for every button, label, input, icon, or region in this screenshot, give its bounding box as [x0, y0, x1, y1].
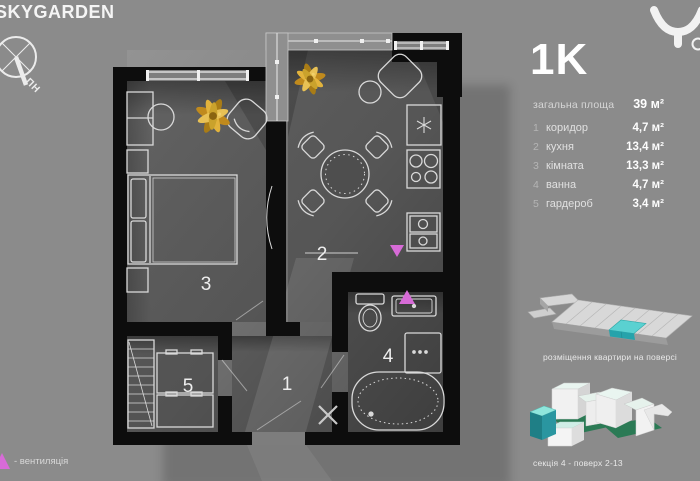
room-name: гардероб	[546, 198, 632, 210]
list-item: 5 гардероб 3,4 м²	[533, 198, 664, 210]
developer-logo-icon	[648, 4, 700, 56]
room-num: 4	[533, 179, 546, 191]
unit-type: 1K	[530, 38, 588, 82]
list-item: 4 ванна 4,7 м²	[533, 179, 664, 191]
room-name: кімната	[546, 160, 626, 172]
room-num: 1	[533, 122, 546, 134]
floor-location-diagram	[520, 272, 700, 354]
brand-logo: SKYGARDEN	[0, 2, 115, 23]
compass-icon: ПН	[0, 37, 42, 96]
vent-legend-label: - вентиляція	[14, 456, 68, 467]
list-item: 3 кімната 13,3 м²	[533, 160, 664, 172]
room-area: 4,7 м²	[632, 122, 664, 134]
dining-table	[321, 150, 369, 198]
total-area-value: 39 м²	[633, 97, 664, 111]
list-item: 1 коридор 4,7 м²	[533, 122, 664, 134]
room-num: 3	[533, 160, 546, 172]
total-area-row: загальна площа 39 м²	[533, 97, 664, 111]
room-list: 1 коридор 4,7 м² 2 кухня 13,4 м² 3 кімна…	[533, 122, 664, 217]
room-area: 4,7 м²	[632, 179, 664, 191]
section-diagram	[520, 376, 680, 456]
room-number-2: 2	[317, 244, 328, 265]
total-area-label: загальна площа	[533, 99, 614, 111]
room-number-4: 4	[383, 346, 394, 367]
legend-vent-triangle	[0, 453, 10, 469]
room-name: кухня	[546, 141, 626, 153]
room-number-5: 5	[183, 376, 194, 397]
section-caption: секція 4 - поверх 2-13	[533, 458, 623, 468]
floorplan-page: { "brand": {"name": "SKYGARDEN", "compas…	[0, 0, 700, 481]
room-number-1: 1	[282, 374, 293, 395]
list-item: 2 кухня 13,4 м²	[533, 141, 664, 153]
floor-location-caption: розміщення квартири на поверсі	[520, 352, 700, 362]
room-area: 13,4 м²	[626, 141, 664, 153]
room-num: 5	[533, 198, 546, 210]
room-area: 13,3 м²	[626, 160, 664, 172]
room-number-3: 3	[201, 274, 212, 295]
room-name: коридор	[546, 122, 632, 134]
room-area: 3,4 м²	[632, 198, 664, 210]
room-num: 2	[533, 141, 546, 153]
room-name: ванна	[546, 179, 632, 191]
